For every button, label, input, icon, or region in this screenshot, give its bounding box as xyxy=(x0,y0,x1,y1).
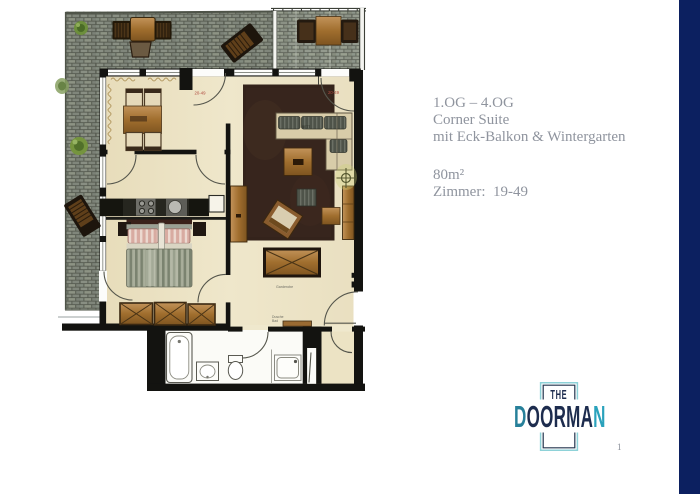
svg-text:Garderobe: Garderobe xyxy=(276,285,293,289)
svg-text:DOORMAN: DOORMAN xyxy=(514,400,606,435)
svg-text:20-49: 20-49 xyxy=(195,91,207,96)
svg-text:BETT: BETT xyxy=(302,125,310,129)
svg-text:20-49: 20-49 xyxy=(328,90,340,95)
svg-text:Bad: Bad xyxy=(272,319,278,323)
